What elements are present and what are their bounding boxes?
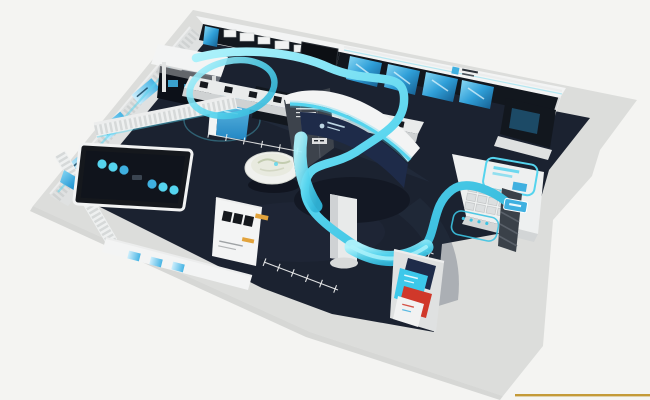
interactive-table	[78, 148, 188, 206]
exhibition-render	[0, 0, 650, 400]
render-canvas	[0, 0, 650, 400]
poster-wall	[390, 250, 444, 332]
terrain-bowl	[245, 152, 300, 193]
gold-rule	[515, 394, 650, 396]
shelf-end-screen	[203, 26, 219, 47]
